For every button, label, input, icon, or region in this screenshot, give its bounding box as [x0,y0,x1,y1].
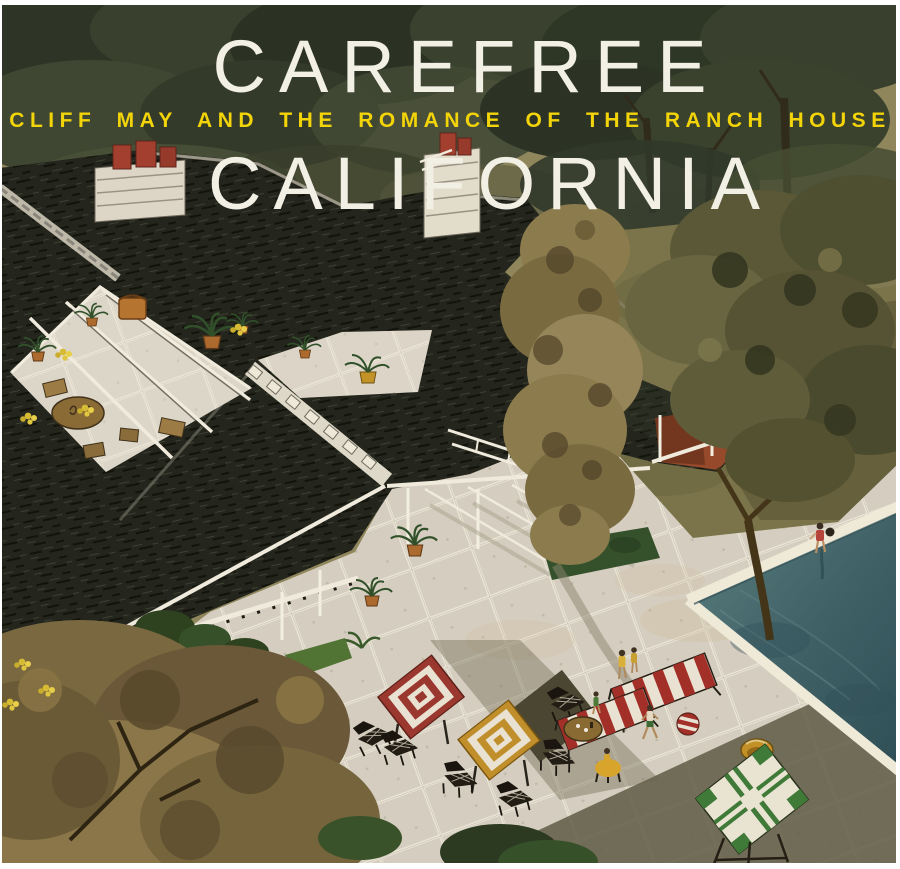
round-table [52,397,104,429]
cover-illustration [0,0,900,869]
book-cover: CAREFREE CLIFF MAY AND THE ROMANCE OF TH… [0,0,900,869]
orange-armchair [119,298,146,319]
stool [83,442,105,458]
stool [119,428,138,442]
round-drink-table [564,717,602,741]
